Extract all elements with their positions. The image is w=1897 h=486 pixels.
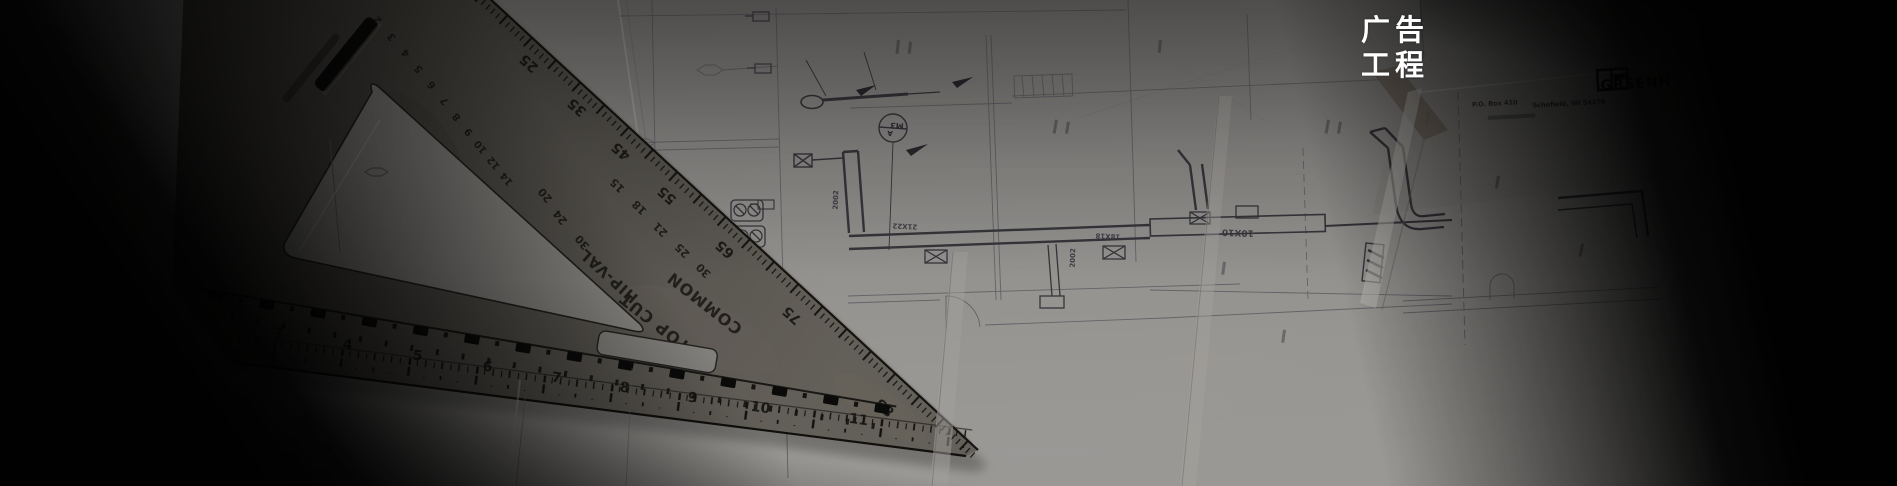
banner: 21X22 18X18 10X10 2002 2002 M3 A (0, 0, 1897, 486)
blueprint-photo-scene: 21X22 18X18 10X10 2002 2002 M3 A (0, 0, 1897, 486)
banner-caption-line1: 广告 (1361, 14, 1429, 49)
duct-size-label: 2002 (1069, 248, 1078, 268)
duct-size-label: 21X22 (892, 221, 917, 230)
equipment-tag-letter: A (887, 129, 893, 137)
duct-size-label: 10X10 (1222, 226, 1254, 237)
banner-caption: 广告 工程 (1361, 14, 1429, 84)
duct-size-label: 18X18 (1095, 231, 1120, 240)
duct-size-label: 2002 (832, 190, 841, 210)
inch-number: 10 (750, 399, 772, 418)
equipment-tag-code: M3 (890, 121, 904, 131)
banner-caption-line2: 工程 (1361, 49, 1429, 84)
inch-number: 11 (848, 411, 870, 430)
